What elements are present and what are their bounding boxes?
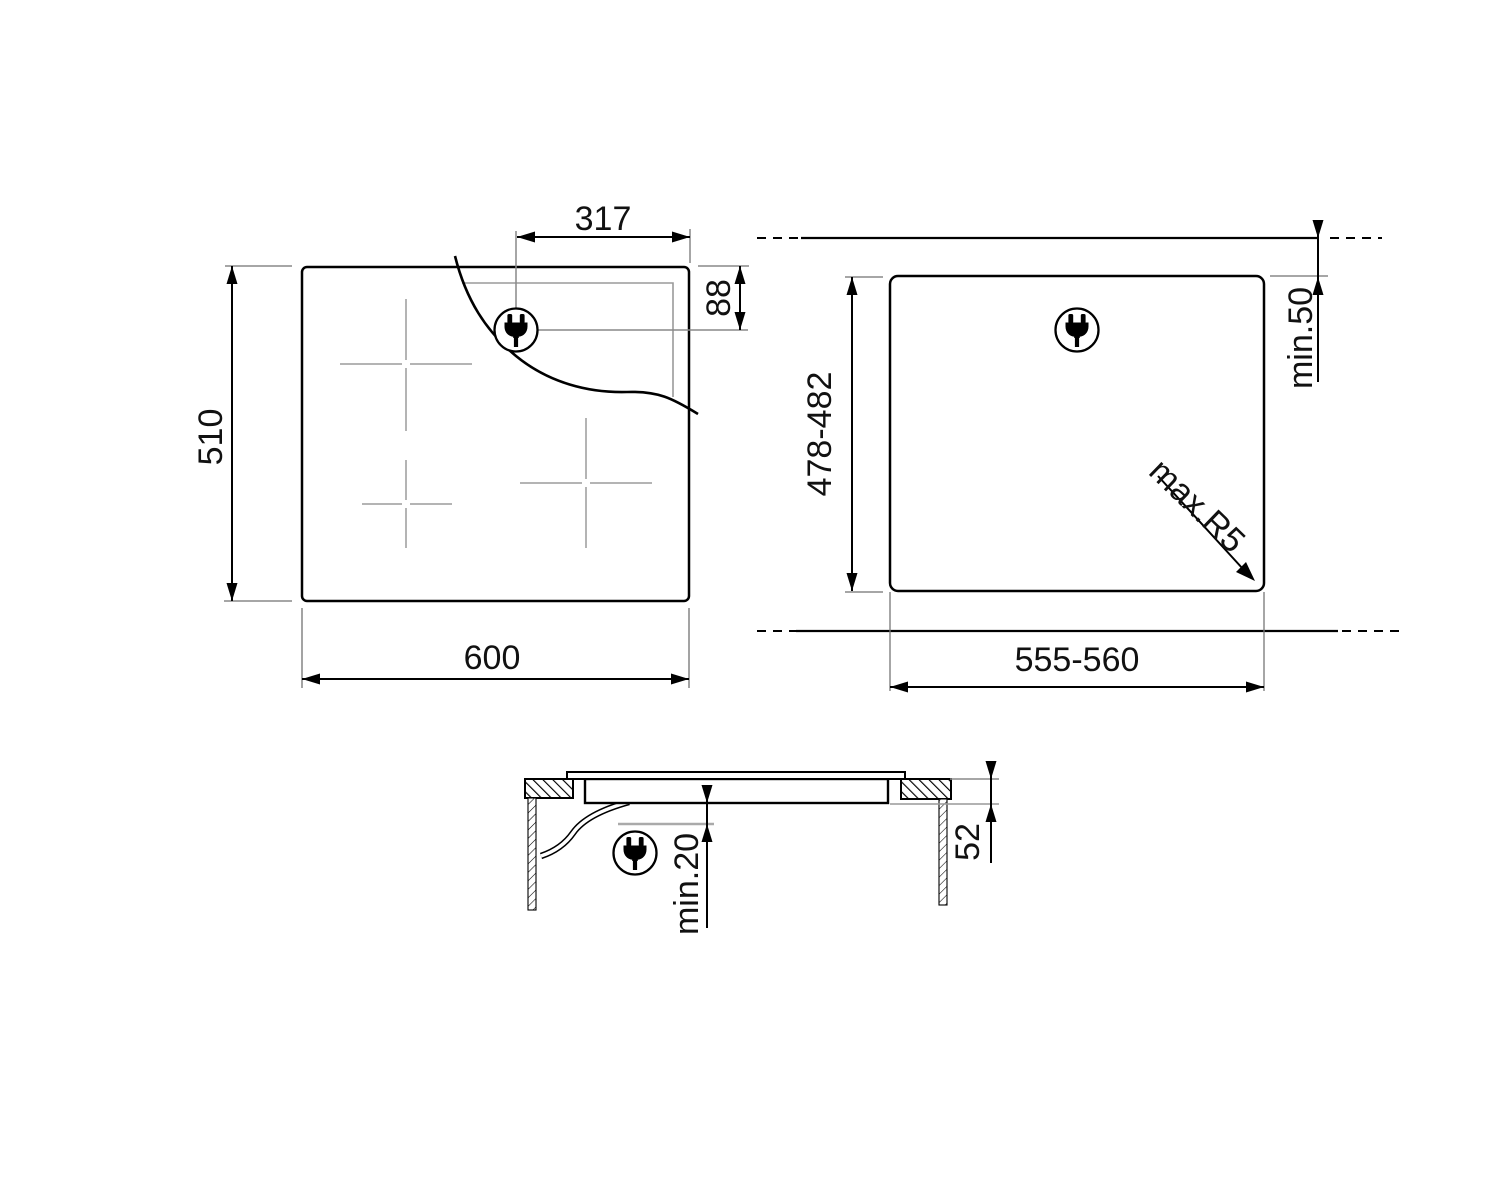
- plan-view: [224, 229, 749, 688]
- dim-cutout-height-label: 478-482: [803, 372, 837, 497]
- installation-drawing: 317 88 510 600 478-482 555-560 min.50 ma…: [0, 0, 1500, 1200]
- dim-cutout-height: [845, 277, 883, 592]
- dim-plug-offset-x-label: 317: [575, 202, 632, 236]
- worktop-section-right: [901, 779, 951, 799]
- power-plug-icon: [1056, 309, 1099, 352]
- dim-rear-clearance-label: min.50: [1284, 287, 1318, 389]
- hob-glass-section: [567, 772, 905, 779]
- section-view: [525, 761, 999, 928]
- dim-hob-height-label: 510: [194, 409, 228, 466]
- cabinet-panel-right: [939, 799, 947, 905]
- cabinet-panel-left: [528, 798, 536, 910]
- power-plug-icon: [614, 832, 657, 875]
- dim-recess-depth-label: 52: [951, 823, 985, 861]
- dim-hob-width-label: 600: [464, 641, 521, 675]
- hob-outline: [302, 267, 689, 601]
- dim-hob-height: [224, 266, 292, 601]
- worktop-section-left: [525, 779, 573, 798]
- dim-bottom-clearance-label: min.20: [670, 833, 704, 935]
- drawing-canvas: [0, 0, 1500, 1200]
- dim-plug-offset-y-label: 88: [702, 279, 736, 317]
- dim-cutout-width-label: 555-560: [1015, 643, 1140, 677]
- hob-body-section: [585, 779, 888, 803]
- power-plug-icon: [495, 309, 538, 352]
